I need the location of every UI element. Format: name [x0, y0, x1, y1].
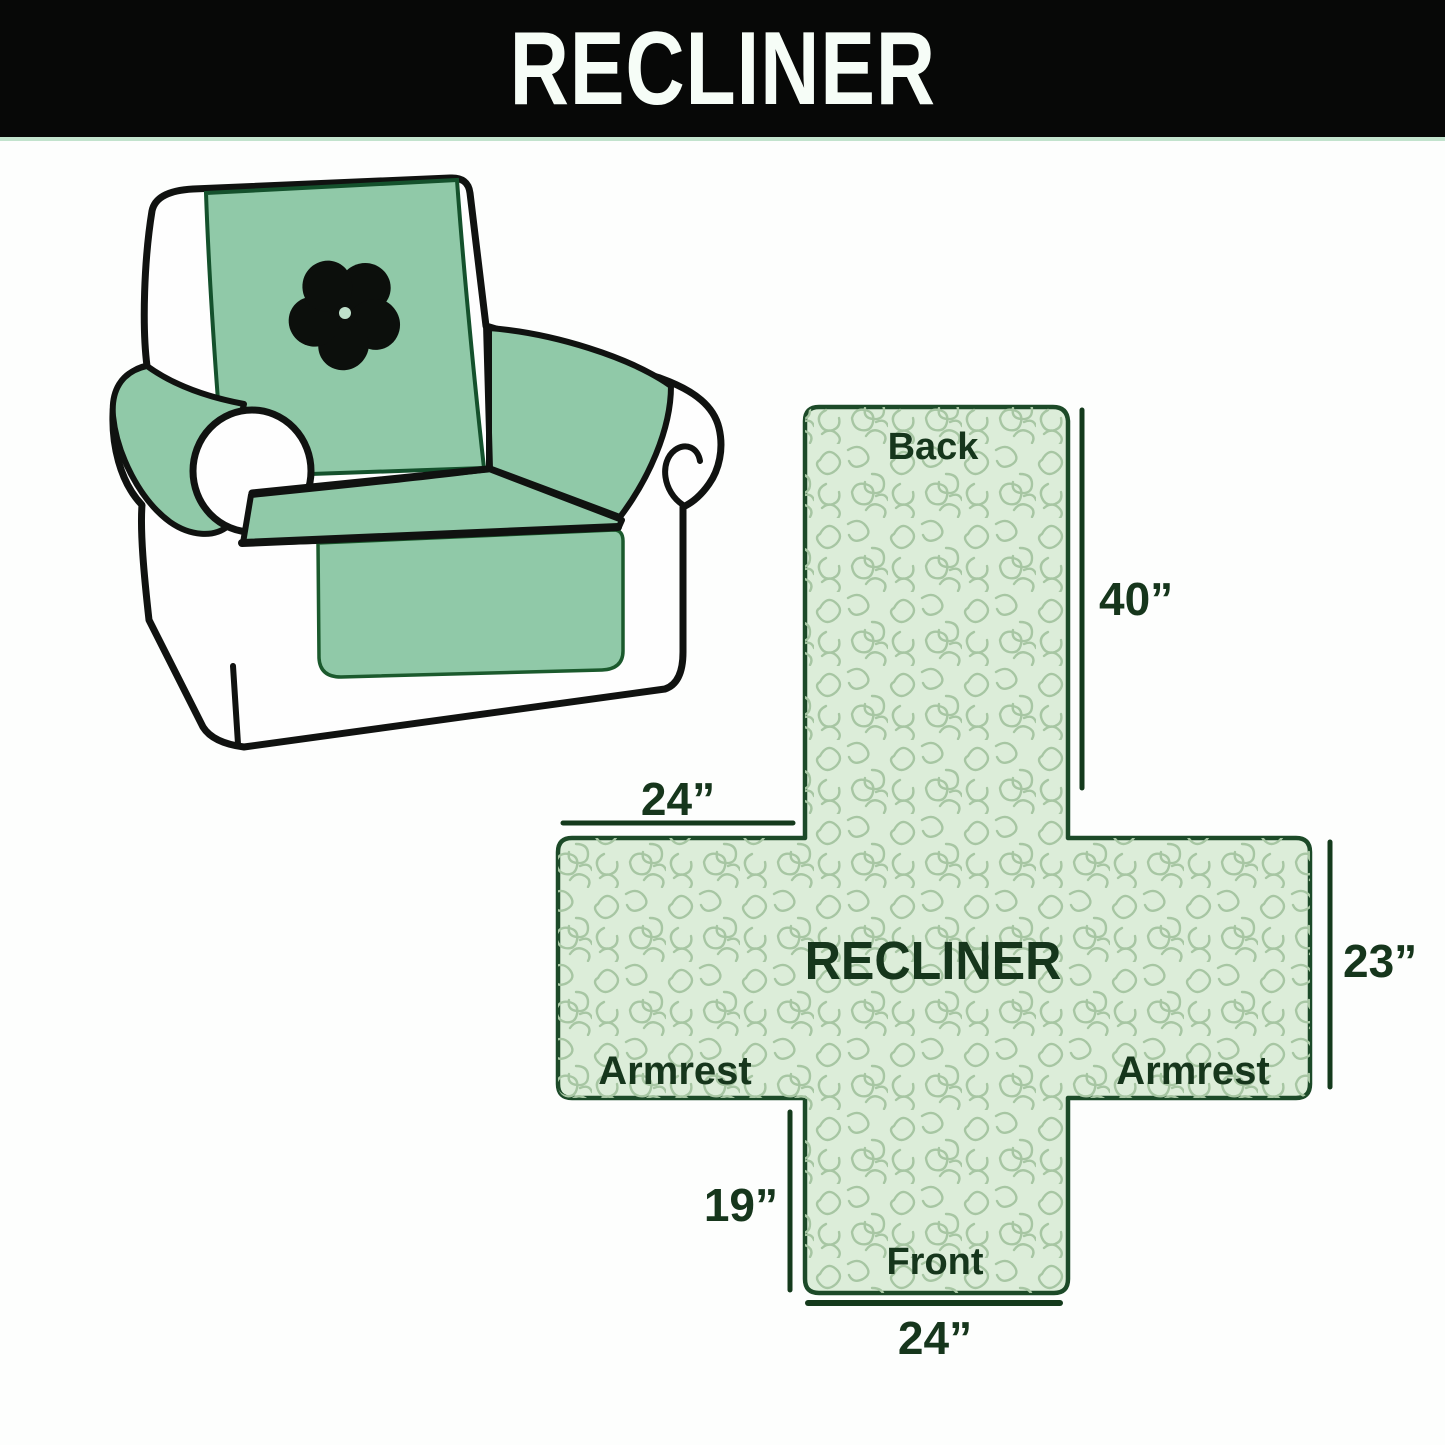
front-label: Front [886, 1243, 983, 1281]
cover-front-skirt [318, 530, 623, 677]
back-label: Back [888, 428, 979, 466]
dim-24-top-label: 24” [641, 776, 715, 822]
chair-illustration [113, 178, 721, 747]
back-right-edge-line [486, 324, 490, 469]
dim-23-label: 23” [1343, 938, 1417, 984]
cross-center-label: RECLINER [805, 934, 1062, 988]
infographic-root: RECLINER [0, 0, 1445, 1445]
armrest-right-label: Armrest [1116, 1051, 1269, 1091]
dim-19-label: 19” [704, 1182, 778, 1228]
dim-24-bottom-label: 24” [898, 1315, 972, 1361]
dim-40-label: 40” [1099, 576, 1173, 622]
armrest-left-label: Armrest [598, 1051, 751, 1091]
